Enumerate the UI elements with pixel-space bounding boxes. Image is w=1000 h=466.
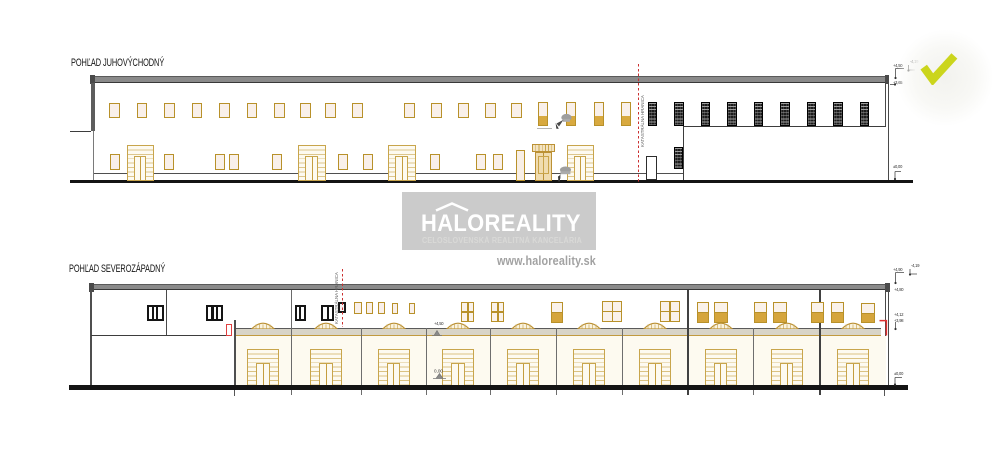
svg-text:0,00: 0,00 xyxy=(434,369,443,374)
